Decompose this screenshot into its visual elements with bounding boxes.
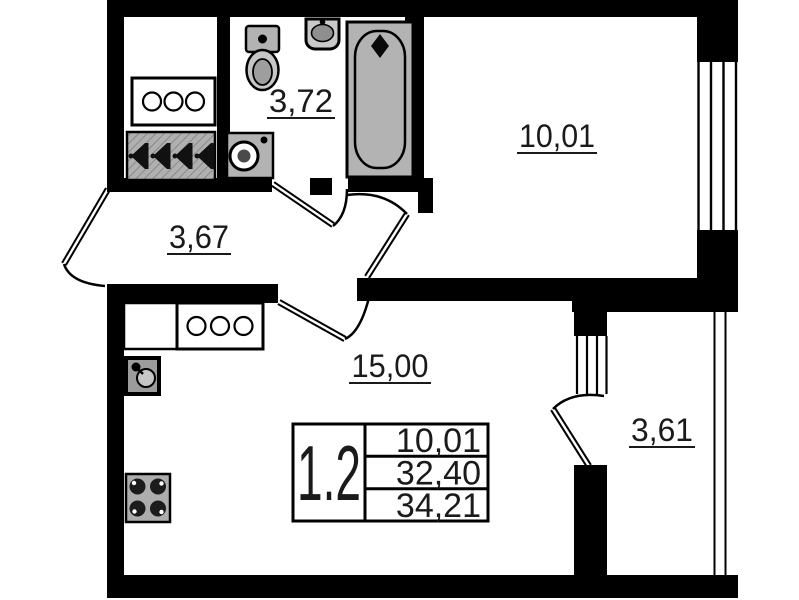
- wall-balcony-partition-lower: [574, 465, 607, 575]
- wall-bottom: [107, 575, 738, 598]
- unit-number: 1.2: [297, 429, 361, 517]
- coat-rack-icon: [127, 132, 215, 180]
- stove-icon: [126, 474, 170, 522]
- washbasin-icon: [306, 19, 339, 49]
- bathtub-icon: [347, 22, 413, 177]
- kitchen-sink-icon: [126, 358, 159, 394]
- kitchen-cabinet-icon: [177, 303, 263, 349]
- toilet-icon: [246, 26, 279, 90]
- dresser-icon: [132, 78, 215, 125]
- wall-jamb: [310, 178, 332, 195]
- hallway-area-label: 3,67: [169, 219, 229, 255]
- wall-left-lower: [107, 284, 124, 598]
- wall-left-upper: [107, 0, 124, 192]
- bedroom-area-label: 10,01: [519, 118, 595, 154]
- wall-bedroom-door-stub: [418, 182, 433, 213]
- wall-living-top: [357, 278, 577, 301]
- floor-plan-svg: 3,72 10,01 3,67 15,00 3,61 1.2 10,01 32,…: [0, 0, 799, 600]
- wall-hall-bottom: [107, 284, 278, 303]
- wall-balcony-top: [572, 278, 738, 312]
- living-area-label: 15,00: [352, 348, 429, 384]
- info-table-row-total-area: 34,21: [396, 487, 481, 525]
- wall-right-below-window: [697, 230, 738, 278]
- wall-balcony-partition-upper: [574, 312, 607, 336]
- info-table: 1.2 10,01 32,40 34,21: [293, 422, 488, 525]
- balcony-area-label: 3,61: [631, 412, 693, 448]
- washing-machine-icon: [227, 133, 273, 178]
- kitchen-counter: [124, 303, 177, 349]
- bathroom-area-label: 3,72: [269, 83, 333, 119]
- floor-plan: 3,72 10,01 3,67 15,00 3,61 1.2 10,01 32,…: [0, 0, 799, 600]
- wall-right-above-window: [697, 17, 738, 62]
